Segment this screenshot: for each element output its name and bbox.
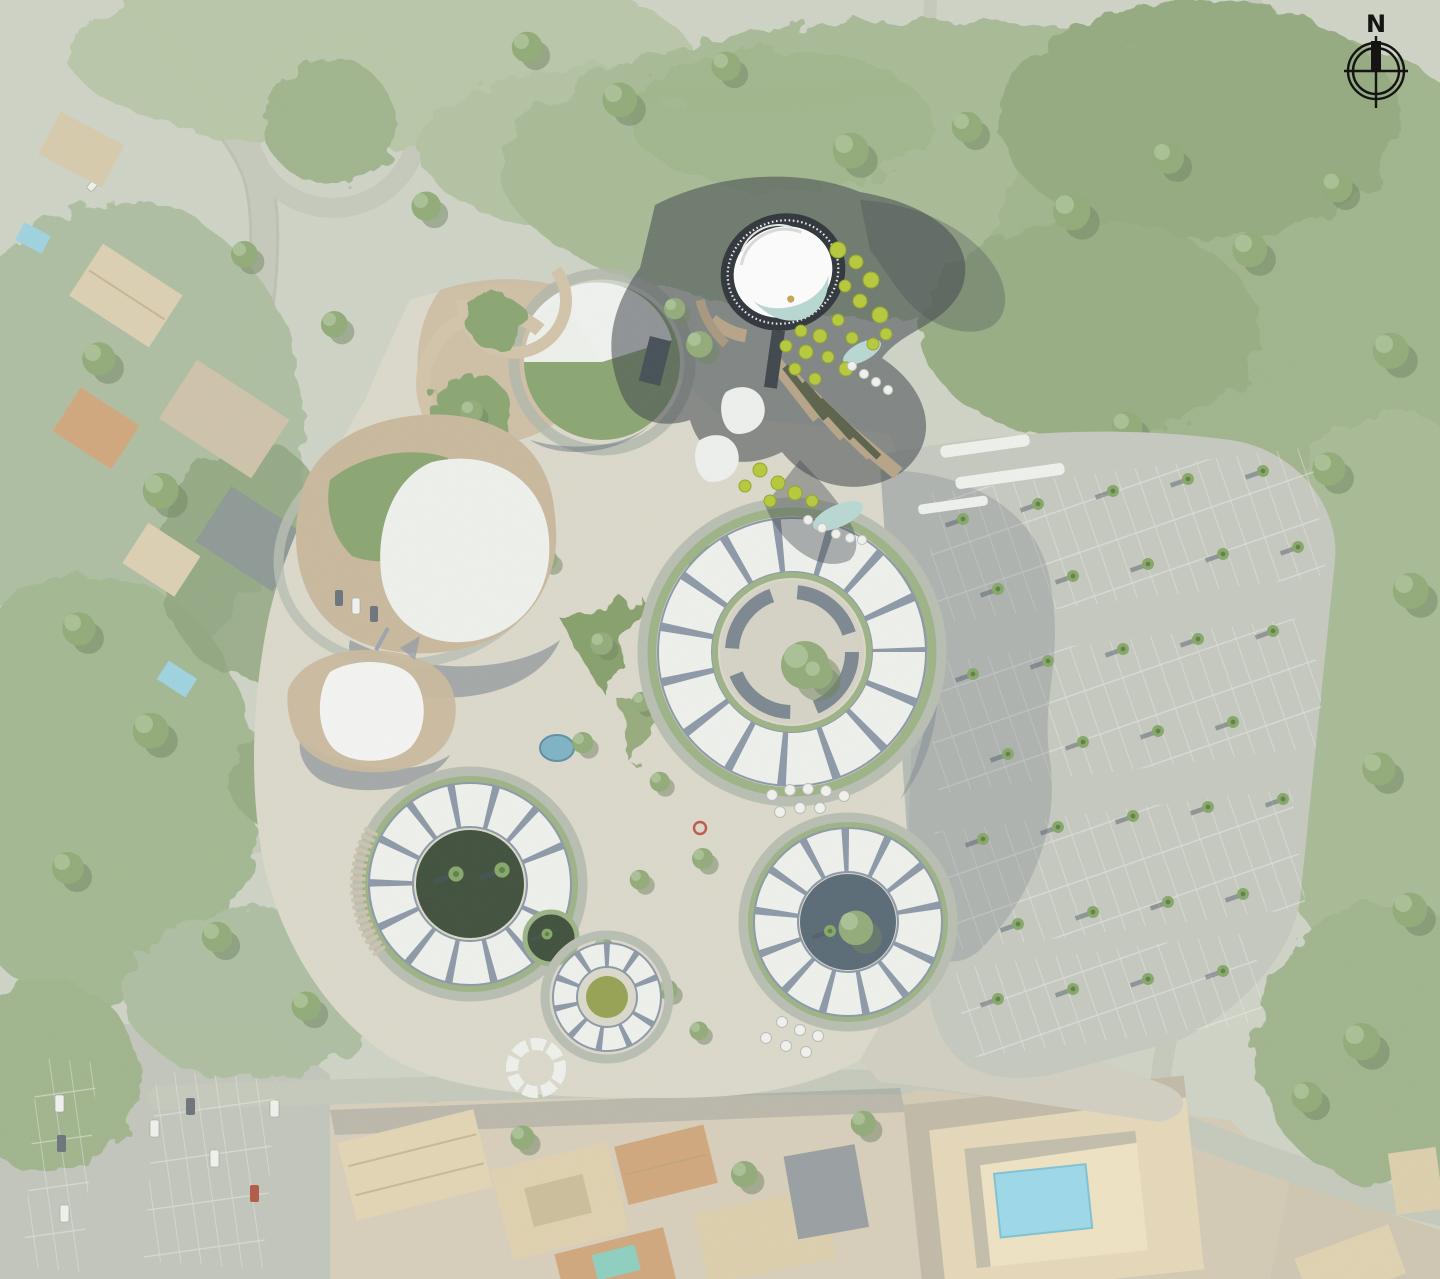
compass-north-pointer	[1371, 41, 1381, 71]
photo-grain-overlay	[0, 0, 1440, 1279]
compass-north-label: N	[1366, 10, 1386, 38]
site-plan-map: N	[0, 0, 1440, 1279]
aerial-map-canvas: N	[0, 0, 1440, 1279]
